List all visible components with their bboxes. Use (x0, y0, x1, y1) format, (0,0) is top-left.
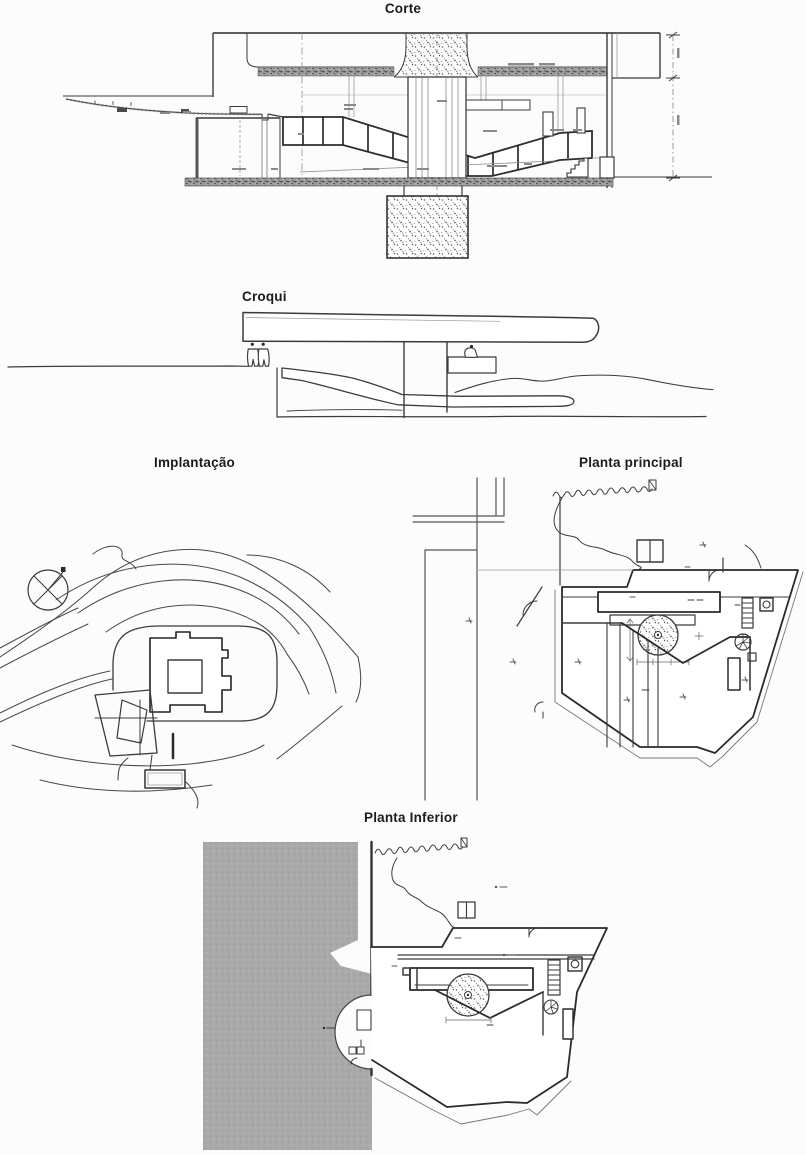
north-compass-icon (28, 567, 68, 610)
planta-inferior-drawing (203, 835, 798, 1155)
planta-principal-drawing (405, 450, 806, 810)
croqui-drawing (0, 290, 806, 435)
terrain-edge (554, 498, 761, 570)
window-symbol-lower (458, 902, 475, 918)
halftone-hill (203, 842, 372, 1150)
sketch-roof-slab (243, 313, 599, 343)
section-foundation (387, 186, 468, 258)
terrain-edge-lower (392, 858, 455, 928)
sketch-ramp (282, 368, 574, 411)
window-symbol (637, 540, 663, 562)
entrance-ramp (63, 96, 283, 120)
pier-column-lower (563, 1009, 573, 1039)
implantacao-drawing (0, 450, 406, 820)
building-outline (477, 558, 803, 767)
standing-figures (248, 343, 270, 367)
circular-core-lower (447, 974, 489, 1016)
sketch-mezzanine (448, 357, 496, 373)
rock-hatch-band-lower (375, 838, 467, 855)
road-lines (413, 478, 504, 800)
planta-inferior-title: Planta Inferior (364, 810, 458, 825)
building-footprint (150, 632, 231, 712)
corte-drawing (0, 0, 806, 266)
page: Corte (0, 0, 806, 1155)
seated-figure (465, 345, 478, 357)
